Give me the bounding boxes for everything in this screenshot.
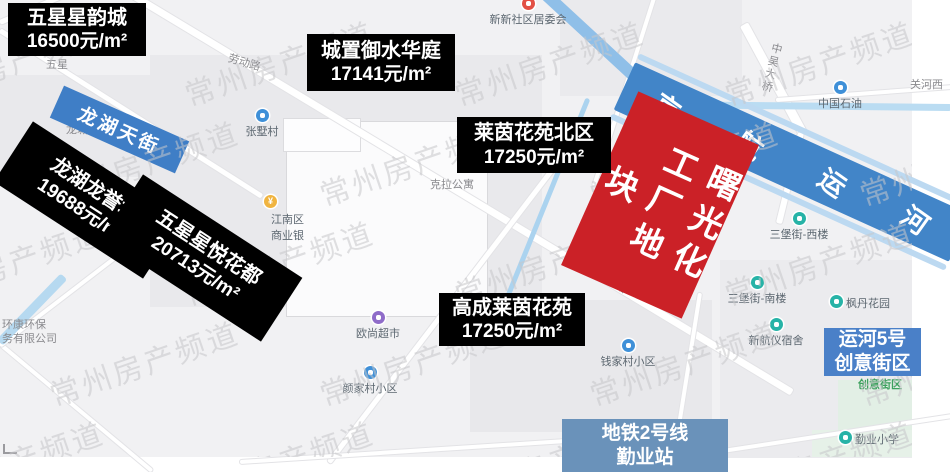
poi-label: 新航仪宿舍 bbox=[731, 332, 821, 348]
poi-label: 枫丹花园 bbox=[846, 295, 890, 311]
poi-label: 颜家村小区 bbox=[325, 380, 415, 396]
poi-label: 张墅村 bbox=[217, 123, 307, 139]
estate-price: 17141元/m² bbox=[331, 63, 431, 86]
poi-icon bbox=[830, 295, 843, 308]
poi-icon: ¥ bbox=[264, 195, 277, 208]
map-label: 克拉公寓 bbox=[430, 176, 474, 192]
poi-dot bbox=[838, 85, 843, 90]
poi-icon bbox=[522, 0, 535, 10]
map-label: 务有限公司 bbox=[2, 330, 57, 346]
estate-name: 城置御水华庭 bbox=[321, 39, 441, 63]
price-label-box: 五星星韵城16500元/m² bbox=[8, 3, 146, 56]
unhe5-creative-block-label: 运河5号 创意街区 bbox=[824, 328, 921, 376]
road-line bbox=[0, 342, 153, 472]
poi-icon bbox=[834, 81, 847, 94]
poi-label: 三堡街-西楼 bbox=[754, 226, 844, 242]
map-label: 五星 bbox=[46, 56, 68, 72]
poi-dot bbox=[376, 315, 381, 320]
poi-dot bbox=[626, 343, 631, 348]
poi-icon bbox=[839, 431, 852, 444]
poi-glyph: ¥ bbox=[268, 197, 273, 206]
poi-label: 钱家村小区 bbox=[583, 353, 673, 369]
price-label-box: 莱茵花苑北区17250元/m² bbox=[457, 117, 611, 173]
poi-dot bbox=[260, 113, 265, 118]
poi-icon bbox=[256, 109, 269, 122]
watermark-text: 常州房产频道 bbox=[43, 309, 245, 415]
poi-dot bbox=[797, 216, 802, 221]
metro-line2-qinye-station-label: 地铁2号线 勤业站 bbox=[562, 419, 728, 472]
poi-dot bbox=[834, 299, 839, 304]
poi-icon bbox=[770, 318, 783, 331]
poi-icon bbox=[793, 212, 806, 225]
poi-label: 勤业小学 bbox=[855, 431, 899, 447]
price-label-box: 城置御水华庭17141元/m² bbox=[307, 34, 455, 91]
unhe5-line1: 运河5号 bbox=[839, 328, 907, 352]
poi-icon bbox=[372, 311, 385, 324]
price-label-box: 高成莱茵花苑17250元/m² bbox=[439, 293, 585, 346]
road-line bbox=[240, 439, 566, 464]
poi-dot bbox=[526, 1, 531, 6]
estate-name: 莱茵花苑北区 bbox=[474, 121, 594, 145]
metro-line1: 地铁2号线 bbox=[602, 422, 689, 446]
scale-bar bbox=[3, 444, 17, 454]
map-label: 关河西 bbox=[910, 76, 943, 92]
unhe5-line2: 创意街区 bbox=[834, 352, 910, 376]
poi-icon bbox=[622, 339, 635, 352]
canal-char: 河 bbox=[894, 195, 939, 242]
poi-label: 新新社区居委会 bbox=[483, 11, 573, 27]
poi-dot bbox=[843, 435, 848, 440]
poi-icon bbox=[364, 366, 377, 379]
estate-name: 五星星韵城 bbox=[27, 6, 127, 30]
estate-price: 17250元/m² bbox=[462, 320, 562, 343]
estate-price: 16500元/m² bbox=[27, 30, 127, 53]
poi-icon bbox=[751, 276, 764, 289]
canal-char: 运 bbox=[811, 157, 856, 204]
poi-dot bbox=[774, 322, 779, 327]
estate-name: 高成莱茵花苑 bbox=[452, 296, 572, 320]
poi-dot bbox=[368, 370, 373, 375]
metro-line2: 勤业站 bbox=[616, 446, 673, 470]
poi-label: 欧尚超市 bbox=[333, 325, 423, 341]
poi-label: 江南区商业银 bbox=[271, 211, 304, 243]
poi-label: 中国石油 bbox=[795, 95, 885, 111]
map-label: 创意街区 bbox=[858, 376, 902, 392]
poi-dot bbox=[755, 280, 760, 285]
poi-label: 三堡街-南楼 bbox=[712, 290, 802, 306]
map-canvas: 常州房产频道常州房产频道常州房产频道常州房产频道常州房产频道常州房产频道常州房产… bbox=[0, 0, 950, 472]
estate-price: 17250元/m² bbox=[484, 146, 584, 169]
